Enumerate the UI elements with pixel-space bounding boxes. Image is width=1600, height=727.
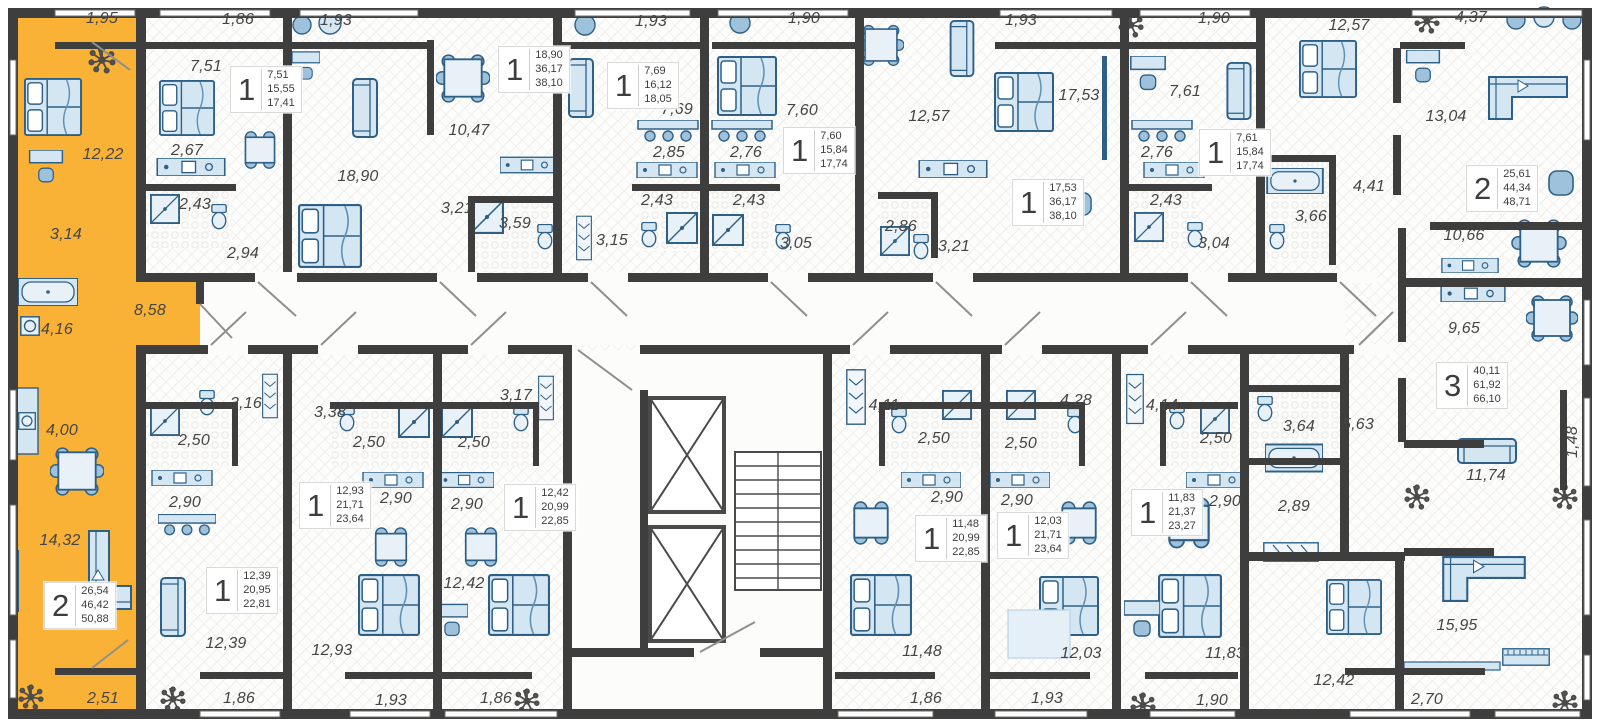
- room-area-label: 11,83: [1205, 645, 1245, 663]
- unit-area-value: 20,99: [952, 532, 980, 546]
- unit-area-value: 15,55: [267, 83, 295, 97]
- labels-layer: 1,9512,223,144,168,584,0014,322,51226,54…: [0, 0, 1600, 727]
- room-area-label: 2,43: [1150, 192, 1182, 210]
- room-area-label: 2,85: [653, 144, 685, 162]
- unit-area-value: 36,17: [1049, 196, 1077, 210]
- room-area-label: 1,90: [788, 10, 820, 28]
- unit-info-badge[interactable]: 225,6144,3448,71: [1466, 165, 1538, 212]
- room-area-label: 12,39: [205, 635, 246, 653]
- room-area-label: 1,93: [1005, 12, 1037, 30]
- unit-info-badge[interactable]: 17,6015,8417,74: [783, 127, 855, 174]
- unit-info-badge[interactable]: 111,8321,3723,27: [1131, 489, 1203, 536]
- unit-areas: 7,6015,8417,74: [814, 130, 848, 171]
- unit-info-badge[interactable]: 112,3920,9522,81: [206, 567, 278, 614]
- room-area-label: 1,93: [320, 12, 352, 30]
- floor-plan: 1,9512,223,144,168,584,0014,322,51226,54…: [0, 0, 1600, 727]
- unit-area-value: 17,74: [820, 158, 848, 172]
- unit-area-value: 12,03: [1034, 515, 1062, 529]
- unit-rooms-count: 1: [1139, 497, 1156, 528]
- unit-area-value: 21,71: [1034, 529, 1062, 543]
- unit-area-value: 23,64: [1034, 543, 1062, 557]
- room-area-label: 1,93: [635, 13, 667, 31]
- unit-area-value: 7,51: [267, 69, 295, 83]
- room-area-label: 2,50: [353, 434, 385, 452]
- room-area-label: 12,42: [1313, 672, 1354, 690]
- unit-area-value: 15,84: [820, 144, 848, 158]
- unit-area-value: 7,61: [1236, 132, 1264, 146]
- unit-area-value: 61,92: [1473, 379, 1501, 393]
- unit-rooms-count: 1: [1005, 520, 1022, 551]
- unit-area-value: 23,64: [336, 513, 364, 527]
- room-area-label: 7,60: [786, 102, 818, 120]
- unit-areas: 26,5446,4250,88: [75, 585, 109, 626]
- unit-info-badge[interactable]: 17,5115,5517,41: [230, 66, 302, 113]
- room-area-label: 2,43: [179, 196, 211, 214]
- room-area-label: 5,63: [1342, 416, 1374, 434]
- unit-rooms-count: 1: [923, 523, 940, 554]
- room-area-label: 9,65: [1448, 320, 1480, 338]
- unit-area-value: 22,85: [952, 546, 980, 560]
- room-area-label: 2,50: [1005, 435, 1037, 453]
- unit-areas: 18,9036,1738,10: [529, 49, 563, 90]
- room-area-label: 2,90: [451, 496, 483, 514]
- room-area-label: 12,42: [443, 575, 484, 593]
- room-area-label: 2,90: [169, 494, 201, 512]
- room-area-label: 3,14: [50, 226, 82, 244]
- unit-area-value: 12,42: [541, 487, 569, 501]
- unit-area-value: 66,10: [1473, 393, 1501, 407]
- unit-area-value: 46,42: [81, 599, 109, 613]
- unit-rooms-count: 1: [506, 54, 523, 85]
- unit-area-value: 23,27: [1168, 520, 1196, 534]
- unit-area-value: 7,69: [644, 65, 672, 79]
- room-area-label: 12,93: [311, 642, 352, 660]
- room-area-label: 1,86: [910, 690, 942, 708]
- unit-info-badge[interactable]: 17,6916,1218,05: [607, 62, 679, 109]
- room-area-label: 1,86: [480, 690, 512, 708]
- unit-info-badge[interactable]: 340,1161,9266,10: [1436, 362, 1508, 409]
- unit-areas: 7,6115,8417,74: [1230, 132, 1264, 173]
- room-area-label: 3,66: [1295, 208, 1327, 226]
- unit-area-value: 17,74: [1236, 160, 1264, 174]
- unit-area-value: 44,34: [1503, 182, 1531, 196]
- room-area-label: 11,74: [1466, 467, 1506, 485]
- unit-area-value: 17,41: [267, 97, 295, 111]
- unit-area-value: 18,90: [535, 49, 563, 63]
- unit-areas: 7,5115,5517,41: [261, 69, 295, 110]
- room-area-label: 17,53: [1058, 87, 1099, 105]
- room-area-label: 3,16: [230, 395, 262, 413]
- room-area-label: 3,05: [780, 235, 812, 253]
- unit-area-value: 18,05: [644, 93, 672, 107]
- unit-rooms-count: 2: [52, 590, 69, 621]
- room-area-label: 4,16: [41, 321, 73, 339]
- unit-area-value: 16,12: [644, 79, 672, 93]
- unit-rooms-count: 3: [1444, 370, 1461, 401]
- room-area-label: 1,90: [1196, 692, 1228, 710]
- unit-area-value: 11,83: [1168, 492, 1196, 506]
- unit-areas: 12,0321,7123,64: [1028, 515, 1062, 556]
- room-area-label: 4,11: [869, 397, 900, 415]
- unit-rooms-count: 1: [1020, 187, 1037, 218]
- room-area-label: 1,93: [375, 692, 407, 710]
- room-area-label: 1,90: [1198, 10, 1230, 28]
- unit-areas: 25,6144,3448,71: [1497, 168, 1531, 209]
- room-area-label: 2,90: [380, 490, 412, 508]
- unit-areas: 7,6916,1218,05: [638, 65, 672, 106]
- room-area-label: 2,90: [1001, 492, 1033, 510]
- unit-info-badge[interactable]: 112,4220,9922,85: [504, 484, 576, 531]
- unit-area-value: 22,85: [541, 515, 569, 529]
- room-area-label: 2,76: [730, 144, 762, 162]
- unit-rooms-count: 1: [214, 575, 231, 606]
- unit-areas: 40,1161,9266,10: [1467, 365, 1501, 406]
- room-area-label: 4,14: [1146, 397, 1178, 415]
- unit-area-value: 12,39: [243, 570, 271, 584]
- room-area-label: 7,61: [1169, 83, 1201, 101]
- unit-areas: 12,9321,7123,64: [330, 485, 364, 526]
- room-area-label: 1,93: [1031, 690, 1063, 708]
- room-area-label: 2,50: [1200, 430, 1232, 448]
- unit-info-badge[interactable]: 17,6115,8417,74: [1199, 129, 1271, 176]
- unit-area-value: 20,95: [243, 584, 271, 598]
- room-area-label: 2,50: [918, 430, 950, 448]
- room-area-label: 3,38: [314, 404, 346, 422]
- unit-area-value: 38,10: [535, 77, 563, 91]
- room-area-label: 2,90: [931, 489, 963, 507]
- room-area-label: 12,22: [82, 146, 123, 164]
- unit-rooms-count: 1: [1207, 137, 1224, 168]
- room-area-label: 10,47: [448, 122, 489, 140]
- unit-info-badge[interactable]: 117,5336,1738,10: [1012, 179, 1084, 226]
- unit-info-badge[interactable]: 112,9321,7123,64: [299, 482, 371, 529]
- room-area-label: 3,15: [596, 232, 628, 250]
- room-area-label: 3,04: [1198, 235, 1230, 253]
- unit-info-badge[interactable]: 112,0321,7123,64: [997, 512, 1069, 559]
- room-area-label: 3,64: [1283, 418, 1315, 436]
- room-area-label: 1,86: [223, 690, 255, 708]
- room-area-label: 3,17: [500, 387, 532, 405]
- unit-area-value: 12,93: [336, 485, 364, 499]
- room-area-label: 1,95: [86, 10, 118, 28]
- unit-rooms-count: 1: [615, 70, 632, 101]
- unit-area-value: 11,48: [952, 518, 980, 532]
- unit-rooms-count: 1: [238, 74, 255, 105]
- room-area-label: 2,43: [733, 192, 765, 210]
- unit-areas: 12,3920,9522,81: [237, 570, 271, 611]
- room-area-label: 2,94: [227, 245, 259, 263]
- room-area-label: 4,00: [46, 422, 78, 440]
- room-area-label: 12,57: [908, 108, 949, 126]
- room-area-label: 2,43: [641, 192, 673, 210]
- room-area-label: 18,90: [337, 168, 378, 186]
- room-area-label: 11,48: [902, 643, 942, 661]
- unit-area-value: 26,54: [81, 585, 109, 599]
- unit-area-value: 21,71: [336, 499, 364, 513]
- room-area-label: 1,86: [222, 11, 254, 29]
- unit-areas: 17,5336,1738,10: [1043, 182, 1077, 223]
- room-area-label: 2,76: [1141, 144, 1173, 162]
- unit-area-value: 22,81: [243, 598, 271, 612]
- unit-rooms-count: 1: [512, 492, 529, 523]
- room-area-label: 13,04: [1425, 108, 1466, 126]
- room-area-label: 1,48: [1564, 426, 1582, 458]
- room-area-label: 3,21: [938, 238, 970, 256]
- room-area-label: 12,03: [1060, 645, 1101, 663]
- unit-areas: 12,4220,9922,85: [535, 487, 569, 528]
- room-area-label: 2,67: [171, 142, 203, 160]
- unit-areas: 11,4820,9922,85: [946, 518, 980, 559]
- room-area-label: 3,21: [441, 200, 473, 218]
- room-area-label: 4,37: [1455, 9, 1487, 27]
- room-area-label: 2,50: [178, 432, 210, 450]
- unit-rooms-count: 1: [791, 135, 808, 166]
- unit-area-value: 21,37: [1168, 506, 1196, 520]
- unit-area-value: 7,60: [820, 130, 848, 144]
- room-area-label: 2,50: [458, 434, 490, 452]
- room-area-label: 2,51: [87, 690, 119, 708]
- room-area-label: 4,41: [1353, 178, 1385, 196]
- room-area-label: 10,66: [1443, 227, 1484, 245]
- room-area-label: 4,28: [1060, 392, 1092, 410]
- room-area-label: 2,90: [1209, 493, 1241, 511]
- unit-area-value: 40,11: [1473, 365, 1501, 379]
- unit-area-value: 15,84: [1236, 146, 1264, 160]
- unit-area-value: 17,53: [1049, 182, 1077, 196]
- unit-areas: 11,8321,3723,27: [1162, 492, 1196, 533]
- room-area-label: 14,32: [39, 532, 80, 550]
- unit-area-value: 36,17: [535, 63, 563, 77]
- unit-rooms-count: 2: [1474, 173, 1491, 204]
- room-area-label: 15,95: [1436, 617, 1477, 635]
- unit-area-value: 20,99: [541, 501, 569, 515]
- room-area-label: 2,70: [1411, 691, 1443, 709]
- unit-info-badge[interactable]: 111,4820,9922,85: [915, 515, 987, 562]
- unit-area-value: 48,71: [1503, 196, 1531, 210]
- room-area-label: 2,86: [885, 218, 917, 236]
- unit-info-badge[interactable]: 226,5446,4250,88: [44, 582, 116, 629]
- unit-rooms-count: 1: [307, 490, 324, 521]
- unit-area-value: 38,10: [1049, 210, 1077, 224]
- unit-area-value: 25,61: [1503, 168, 1531, 182]
- room-area-label: 8,58: [134, 302, 166, 320]
- unit-info-badge[interactable]: 118,9036,1738,10: [498, 46, 570, 93]
- unit-area-value: 50,88: [81, 613, 109, 627]
- room-area-label: 12,57: [1328, 17, 1369, 35]
- room-area-label: 2,89: [1278, 498, 1310, 516]
- room-area-label: 7,51: [190, 58, 222, 76]
- room-area-label: 3,59: [499, 215, 531, 233]
